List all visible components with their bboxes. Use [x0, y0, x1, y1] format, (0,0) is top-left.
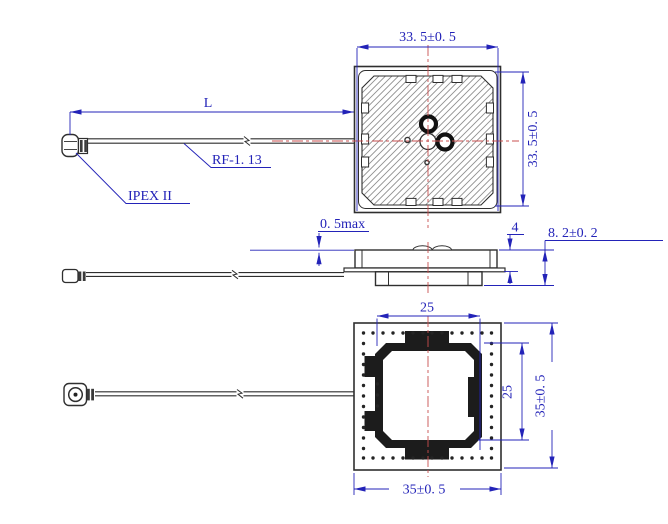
side-view: 0. 5max 4 8. 2±0. 2	[63, 217, 664, 294]
label-connector-type: IPEX II	[76, 153, 190, 204]
dim-board-height-label: 35±0. 5	[534, 375, 549, 418]
dim-shield-height-label: 25	[501, 385, 516, 399]
dim-cable-length-label: L	[204, 96, 213, 111]
solder-ring-right	[438, 135, 453, 150]
small-hole-left	[405, 137, 410, 142]
dim-protrusion: 0. 5max	[250, 217, 369, 266]
dim-board-width: 35±0. 5	[354, 473, 501, 498]
ipex-connector-profile-icon	[63, 270, 86, 283]
ipex-connector-side-icon	[62, 135, 88, 157]
small-hole-bottom	[425, 160, 429, 164]
shield-profile	[376, 272, 483, 286]
patch-profile	[355, 250, 497, 268]
coax-cable-bottom	[95, 389, 364, 398]
cable-type-label: RF-1. 13	[212, 153, 262, 168]
dim-total-height-label: 8. 2±0. 2	[548, 226, 598, 241]
dim-board-width-label: 35±0. 5	[403, 483, 446, 498]
label-cable-type: RF-1. 13	[184, 144, 271, 169]
ipex-connector-face-icon	[64, 384, 94, 406]
shield-tab-left-lower	[365, 411, 376, 431]
connector-center-pin	[74, 393, 78, 397]
dim-stack-height-label: 4	[512, 221, 519, 236]
dim-cable-length: L	[70, 96, 354, 135]
bottom-view: 25 25 35±0. 5 35±0. 5	[64, 301, 558, 498]
solder-ring-top	[421, 117, 436, 132]
coax-cable-side	[86, 270, 344, 279]
dim-top-height-label: 33. 5±0. 5	[526, 111, 541, 168]
dim-shield-width-label: 25	[420, 301, 434, 316]
dim-top-height: 33. 5±0. 5	[495, 72, 541, 206]
cable-assembly-view: L RF-1. 13 IPEX II	[62, 96, 361, 204]
dim-stack-height: 4	[499, 221, 554, 285]
drawing-canvas: L RF-1. 13 IPEX II	[0, 0, 668, 524]
shield-tab-left-upper	[365, 356, 376, 377]
antenna-profile	[344, 246, 505, 286]
solder-bump	[413, 246, 432, 250]
connector-type-label: IPEX II	[128, 189, 172, 204]
solder-bump	[433, 246, 452, 250]
top-view: 33. 5±0. 5 33. 5±0. 5	[272, 30, 541, 228]
dim-protrusion-label: 0. 5max	[320, 217, 365, 232]
dim-top-width-label: 33. 5±0. 5	[399, 30, 456, 45]
shield-tab-right	[468, 377, 482, 417]
antenna-drawing: L RF-1. 13 IPEX II	[0, 0, 668, 524]
